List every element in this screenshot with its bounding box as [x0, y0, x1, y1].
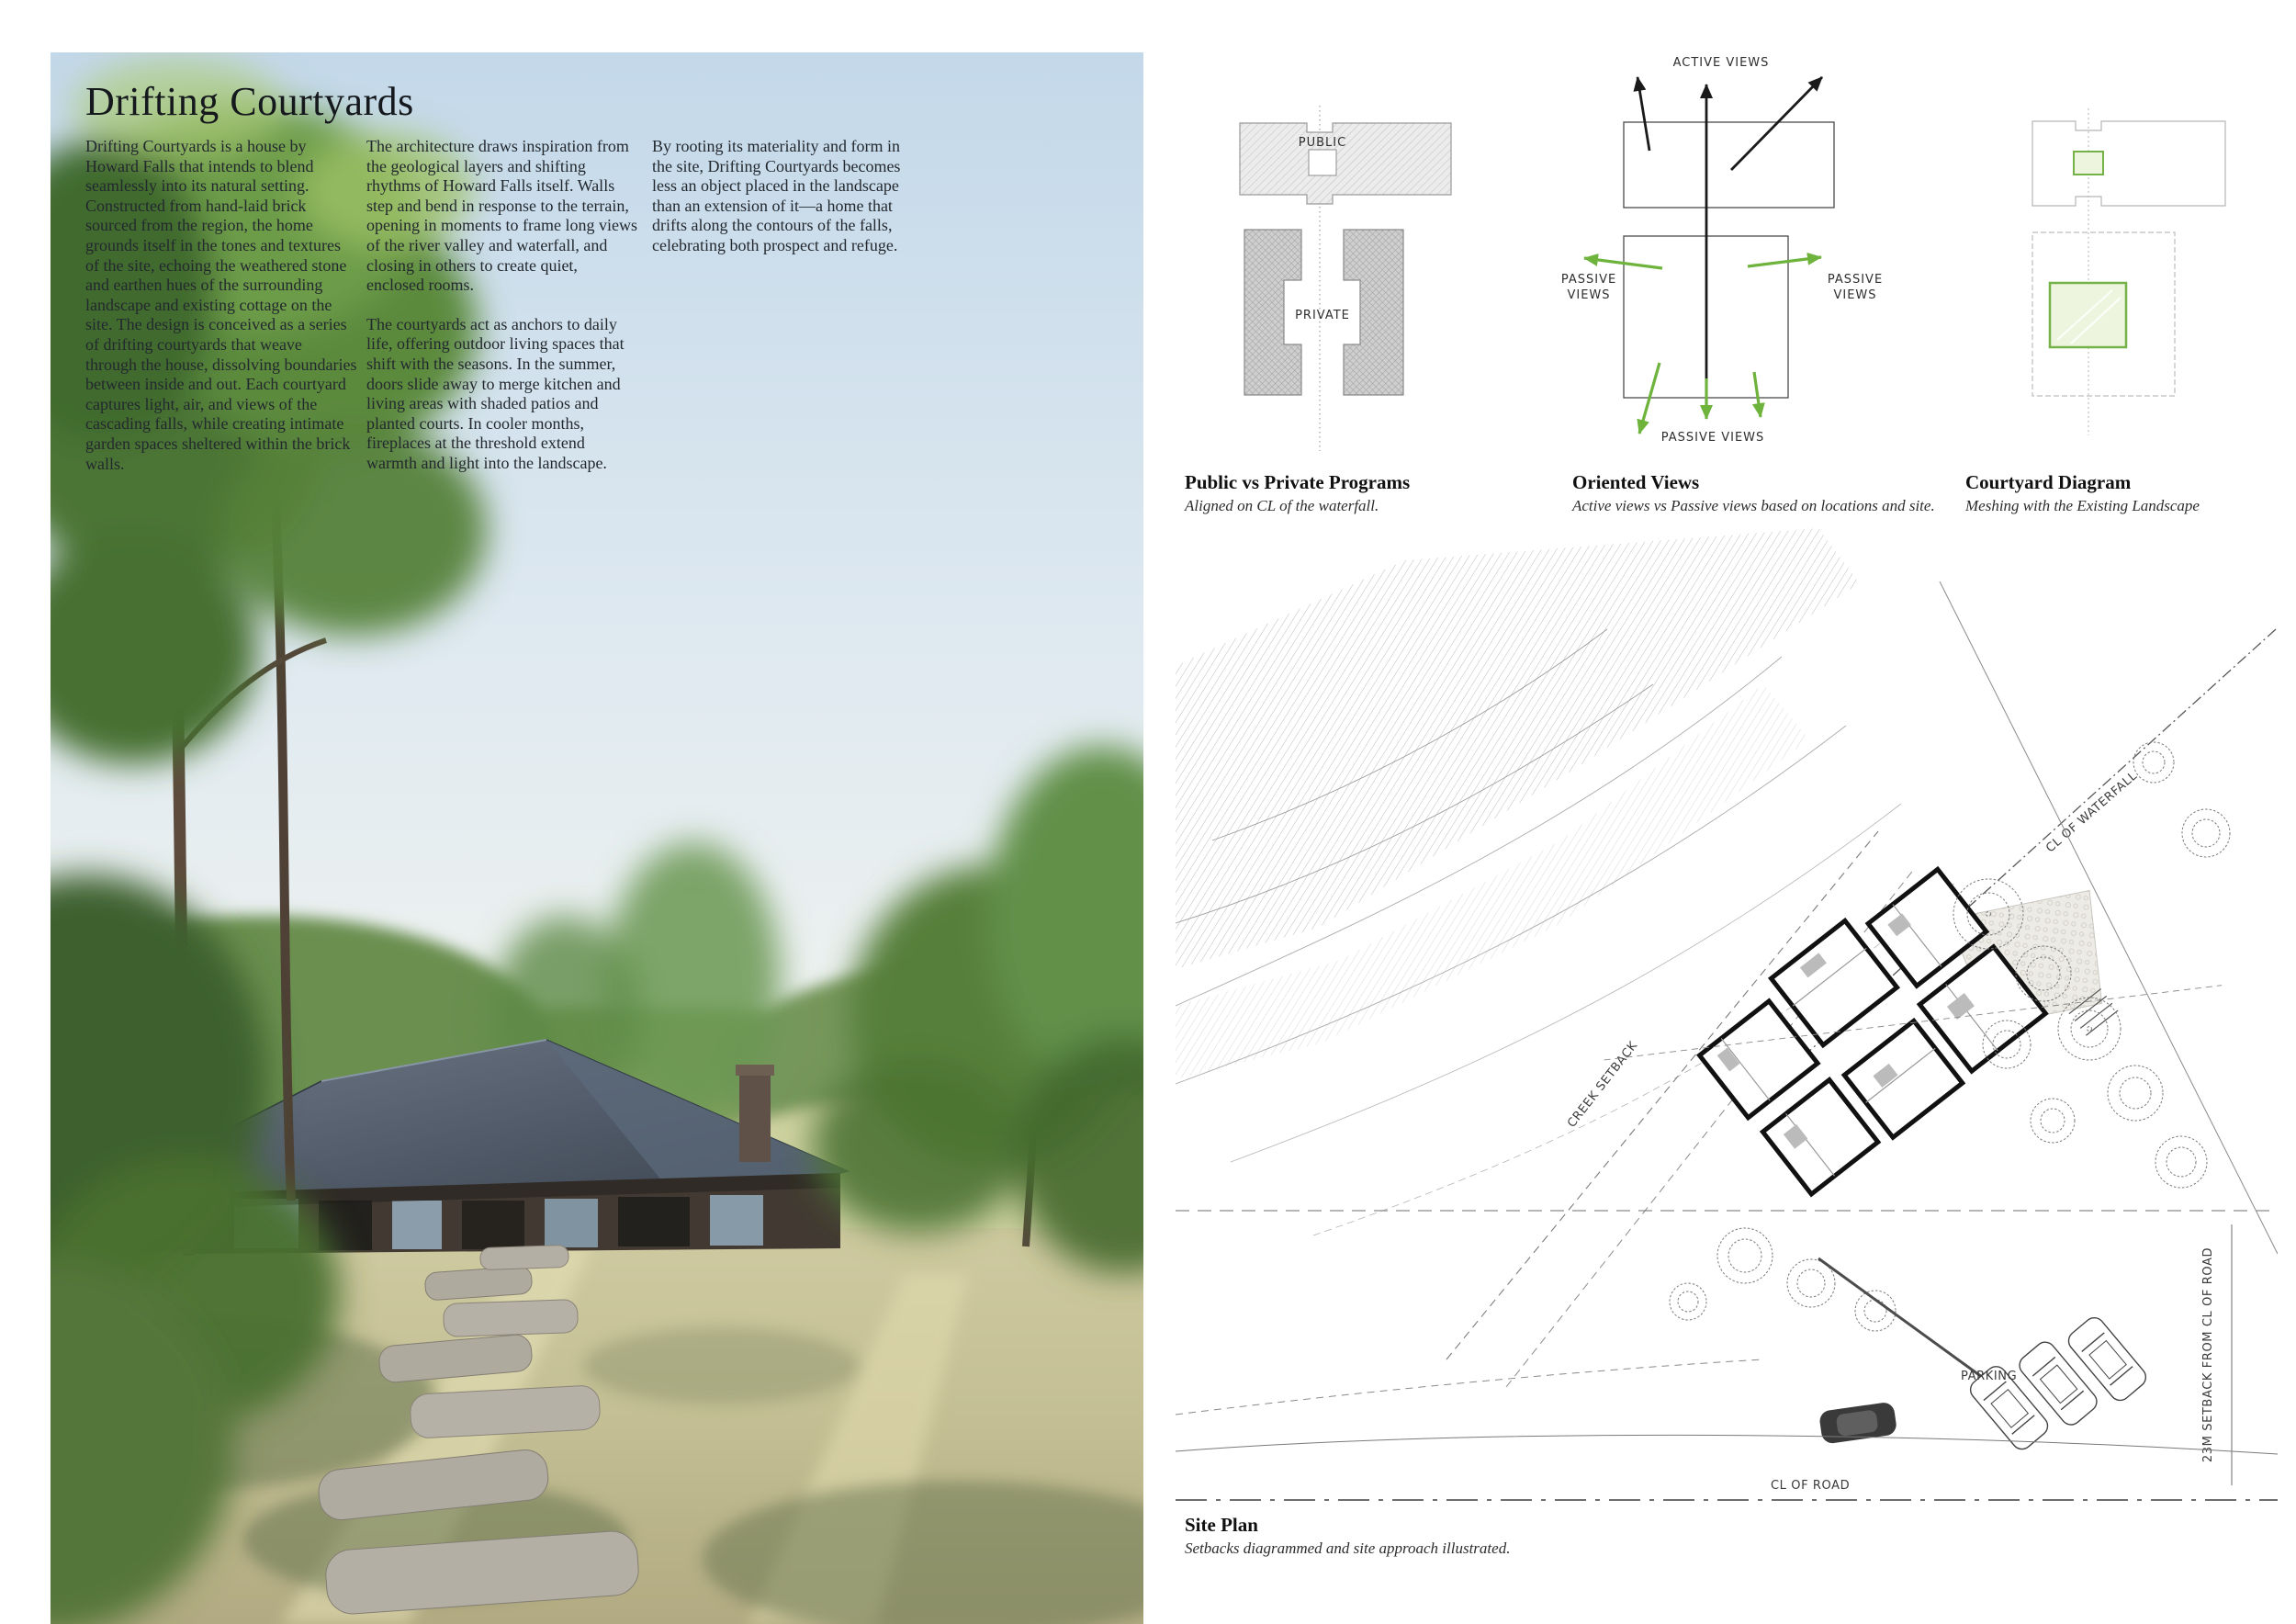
caption-oriented-views: Oriented Views Active views vs Passive v…: [1572, 471, 1940, 515]
road-centerline-label: CL OF ROAD: [1771, 1479, 1850, 1493]
intro-text-block: Drifting Courtyards Drifting Courtyards …: [51, 52, 1143, 1624]
active-view-arrow-left: [1638, 77, 1649, 151]
caption-title: Site Plan: [1185, 1514, 1828, 1537]
private-block-left: [1244, 230, 1301, 395]
page-title: Drifting Courtyards: [85, 78, 414, 125]
upper-volume-outline: [1624, 122, 1834, 208]
active-views-label: ACTIVE VIEWS: [1673, 56, 1770, 70]
caption-courtyard: Courtyard Diagram Meshing with the Exist…: [1965, 471, 2296, 515]
diagram-courtyard: [2025, 108, 2291, 439]
intro-paragraph: By rooting its materiality and form in t…: [652, 137, 924, 256]
caption-title: Public vs Private Programs: [1185, 471, 1552, 494]
caption-public-private: Public vs Private Programs Aligned on CL…: [1185, 471, 1552, 515]
upper-bar-outline: [2032, 121, 2225, 206]
intro-column-2: The architecture draws inspiration from …: [366, 137, 638, 493]
passive-views-right-label-2: VIEWS: [1833, 288, 1876, 302]
public-courtyard-square: [1309, 150, 1336, 175]
car-on-road: [1818, 1402, 1897, 1445]
caption-subtitle: Active views vs Passive views based on l…: [1572, 497, 1940, 515]
intro-column-3: By rooting its materiality and form in t…: [652, 137, 924, 276]
private-label: PRIVATE: [1295, 309, 1350, 322]
passive-views-bottom-label: PASSIVE VIEWS: [1661, 431, 1765, 445]
waterfall-centerline-label: CL OF WATERFALL: [2043, 769, 2140, 855]
active-view-arrow-right: [1731, 77, 1822, 170]
diagram-oriented-views: ACTIVE VIEWS PASSIVE VIEWS PASSIVE VIEWS…: [1561, 39, 1924, 466]
caption-subtitle: Setbacks diagrammed and site approach il…: [1185, 1539, 1828, 1558]
caption-site-plan: Site Plan Setbacks diagrammed and site a…: [1185, 1514, 1828, 1558]
public-label: PUBLIC: [1299, 136, 1346, 150]
intro-column-1: Drifting Courtyards is a house by Howard…: [85, 137, 357, 493]
intro-paragraph: Drifting Courtyards is a house by Howard…: [85, 137, 357, 474]
parking-area: [1818, 1258, 2150, 1472]
site-plan-drawing: CREEK SETBACK CL OF WATERFALL 23M SETBAC…: [1176, 528, 2278, 1516]
road-setback-label: 23M SETBACK FROM CL OF ROAD: [2201, 1247, 2215, 1462]
road: [1176, 1435, 2278, 1500]
caption-subtitle: Aligned on CL of the waterfall.: [1185, 497, 1552, 515]
intro-paragraph: The architecture draws inspiration from …: [366, 137, 638, 296]
courtyard-square-small: [2074, 152, 2103, 175]
creek-setback-label: CREEK SETBACK: [1565, 1039, 1640, 1131]
passive-views-right-label-1: PASSIVE: [1828, 273, 1883, 287]
passive-view-arrow-down-3: [1754, 372, 1761, 417]
diagram-public-private: PUBLIC PRIVATE: [1221, 106, 1534, 455]
courtyard-square-large: [2050, 283, 2126, 347]
intro-paragraph: The courtyards act as anchors to daily l…: [366, 315, 638, 474]
caption-title: Courtyard Diagram: [1965, 471, 2296, 494]
passive-view-arrow-right: [1748, 257, 1821, 266]
caption-subtitle: Meshing with the Existing Landscape: [1965, 497, 2296, 515]
presentation-board: Drifting Courtyards Drifting Courtyards …: [0, 0, 2296, 1624]
passive-views-left-label-2: VIEWS: [1567, 288, 1610, 302]
private-block-right: [1344, 230, 1403, 395]
parking-label: PARKING: [1961, 1370, 2017, 1383]
passive-views-left-label-1: PASSIVE: [1561, 273, 1616, 287]
caption-title: Oriented Views: [1572, 471, 1940, 494]
